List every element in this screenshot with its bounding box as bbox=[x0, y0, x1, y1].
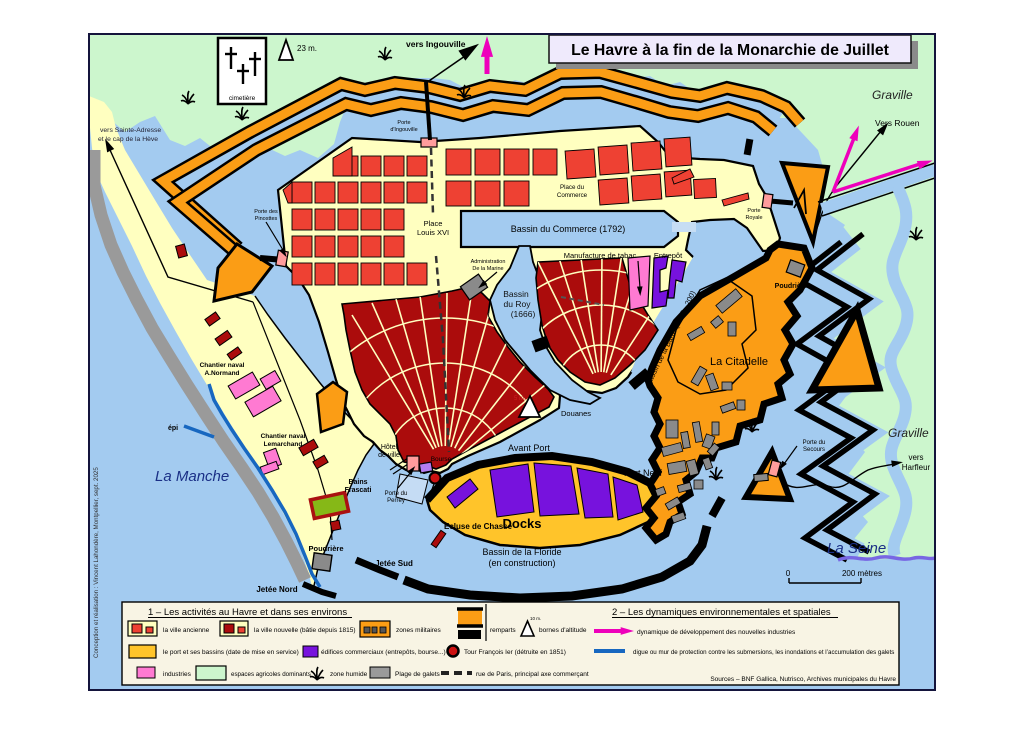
svg-text:la ville ancienne: la ville ancienne bbox=[163, 627, 210, 634]
svg-text:Place du: Place du bbox=[560, 184, 585, 191]
svg-text:Bains: Bains bbox=[348, 479, 367, 486]
svg-text:de ville: de ville bbox=[378, 452, 400, 459]
svg-text:rue de Paris, principal axe co: rue de Paris, principal axe commerçant bbox=[476, 671, 589, 678]
svg-text:Plage de galets: Plage de galets bbox=[395, 671, 441, 678]
svg-text:Vers Rouen: Vers Rouen bbox=[875, 118, 920, 128]
svg-text:vers Ingouville: vers Ingouville bbox=[406, 39, 466, 49]
svg-text:Hôtel: Hôtel bbox=[381, 444, 398, 451]
svg-text:Chantier naval: Chantier naval bbox=[200, 362, 245, 369]
svg-text:Perrey: Perrey bbox=[387, 498, 405, 504]
svg-text:Manufacture de tabac: Manufacture de tabac bbox=[564, 251, 637, 260]
svg-text:épi: épi bbox=[168, 425, 178, 432]
svg-text:vers: vers bbox=[908, 453, 923, 462]
svg-text:Douanes: Douanes bbox=[561, 409, 591, 418]
svg-text:La Seine: La Seine bbox=[827, 540, 886, 557]
svg-text:Porte du: Porte du bbox=[803, 440, 826, 446]
svg-text:Jetée Sud: Jetée Sud bbox=[375, 559, 413, 568]
svg-text:Poudrière: Poudrière bbox=[775, 283, 808, 290]
svg-text:200 mètres: 200 mètres bbox=[842, 569, 882, 578]
svg-text:Place: Place bbox=[424, 219, 443, 228]
svg-text:De la Marine: De la Marine bbox=[472, 266, 503, 272]
svg-text:Port Neuf: Port Neuf bbox=[624, 468, 663, 478]
svg-text:(en construction): (en construction) bbox=[488, 558, 555, 568]
svg-text:Jetée Nord: Jetée Nord bbox=[256, 585, 297, 594]
svg-text:zones militaires: zones militaires bbox=[396, 627, 442, 634]
svg-text:Graville: Graville bbox=[872, 88, 913, 102]
svg-text:23 m.: 23 m. bbox=[297, 44, 317, 53]
svg-text:A.Normand: A.Normand bbox=[204, 370, 239, 377]
svg-text:(1666): (1666) bbox=[511, 309, 536, 319]
svg-text:d'Ingouville: d'Ingouville bbox=[390, 127, 417, 133]
svg-text:Royale: Royale bbox=[745, 215, 762, 221]
svg-text:Conception et réalisation : Vi: Conception et réalisation : Vincent Laho… bbox=[93, 467, 100, 658]
svg-text:édifices commerciaux (entrepôt: édifices commerciaux (entrepôts, bourse.… bbox=[321, 649, 446, 656]
svg-text:Poudrière: Poudrière bbox=[308, 544, 343, 553]
svg-text:la ville nouvelle (bâtie depui: la ville nouvelle (bâtie depuis 1815) bbox=[254, 627, 356, 634]
svg-text:Lemarchand: Lemarchand bbox=[264, 441, 303, 448]
svg-text:Harfleur: Harfleur bbox=[902, 463, 931, 472]
svg-text:Graville: Graville bbox=[888, 426, 929, 440]
svg-text:Le Havre à la fin de la Monarc: Le Havre à la fin de la Monarchie de Jui… bbox=[571, 42, 890, 59]
svg-text:1 – Les activités au Havre et: 1 – Les activités au Havre et dans ses e… bbox=[148, 607, 347, 618]
svg-text:Louis XVI: Louis XVI bbox=[417, 228, 449, 237]
svg-text:cimetière: cimetière bbox=[229, 95, 256, 102]
svg-text:vers Sainte-Adresse: vers Sainte-Adresse bbox=[100, 127, 161, 134]
svg-text:Porte des: Porte des bbox=[254, 209, 278, 215]
svg-text:Commerce: Commerce bbox=[557, 192, 588, 199]
svg-text:et le cap de la Hève: et le cap de la Hève bbox=[98, 136, 158, 143]
svg-text:industries: industries bbox=[163, 671, 192, 678]
svg-text:Pinosttes: Pinosttes bbox=[255, 216, 278, 222]
svg-text:remparts: remparts bbox=[490, 627, 516, 634]
svg-text:Porte: Porte bbox=[747, 208, 760, 214]
svg-text:2 – Les dynamiques environneme: 2 – Les dynamiques environnementales et … bbox=[612, 607, 831, 618]
svg-text:Secours: Secours bbox=[803, 447, 825, 453]
svg-text:Chantier naval: Chantier naval bbox=[261, 433, 306, 440]
svg-text:bornes d'altitude: bornes d'altitude bbox=[539, 627, 587, 634]
svg-text:Porte: Porte bbox=[397, 120, 410, 126]
svg-text:Porte du: Porte du bbox=[385, 491, 408, 497]
svg-text:Sources – BNF Gallica, Nutrisc: Sources – BNF Gallica, Nutrisco, Archive… bbox=[710, 676, 896, 683]
svg-text:Administration: Administration bbox=[471, 259, 506, 265]
svg-text:dynamique de développement des: dynamique de développement des nouvelles… bbox=[637, 629, 796, 636]
svg-text:0: 0 bbox=[786, 569, 791, 578]
svg-text:Bassin: Bassin bbox=[503, 289, 529, 299]
svg-text:du Roy: du Roy bbox=[504, 299, 532, 309]
svg-text:Bassin de la Floride: Bassin de la Floride bbox=[482, 547, 561, 557]
svg-text:Bourse: Bourse bbox=[431, 456, 452, 463]
svg-text:La Citadelle: La Citadelle bbox=[710, 356, 768, 368]
svg-text:digue ou mur de protection con: digue ou mur de protection contre les su… bbox=[633, 649, 894, 656]
svg-text:Bassin du Commerce (1792): Bassin du Commerce (1792) bbox=[511, 224, 626, 234]
svg-text:Avant Port: Avant Port bbox=[508, 443, 550, 453]
svg-text:5 m.: 5 m. bbox=[514, 396, 526, 402]
svg-text:La Manche: La Manche bbox=[155, 468, 229, 485]
svg-text:le port et ses bassins (date d: le port et ses bassins (date de mise en … bbox=[163, 649, 299, 656]
svg-text:zone humide: zone humide bbox=[330, 671, 368, 678]
svg-text:espaces agricoles dominants: espaces agricoles dominants bbox=[231, 671, 311, 678]
svg-text:Frascati: Frascati bbox=[345, 487, 372, 494]
svg-text:10 m.: 10 m. bbox=[530, 616, 541, 621]
svg-text:Tour François Ier (détruite en: Tour François Ier (détruite en 1851) bbox=[464, 649, 566, 656]
svg-text:Entrepôt: Entrepôt bbox=[654, 251, 683, 260]
svg-text:Docks: Docks bbox=[502, 516, 541, 531]
